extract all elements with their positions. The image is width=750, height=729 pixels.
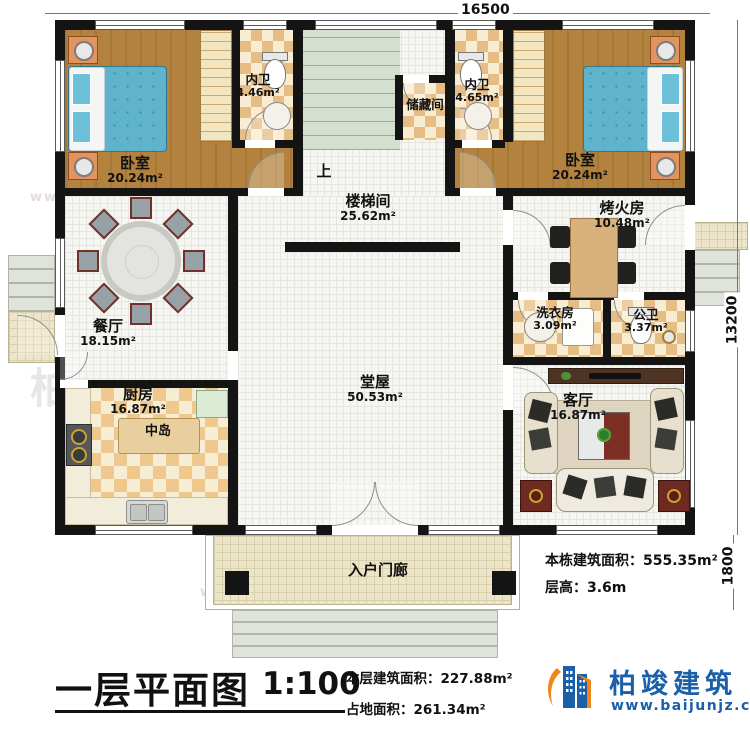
- dim-line-right: [737, 20, 738, 535]
- nightstand: [650, 36, 680, 64]
- plant-icon: [561, 372, 571, 380]
- sink-icon: [263, 102, 291, 130]
- side-table-icon: [520, 480, 552, 512]
- dim-line-top: [45, 13, 710, 14]
- chair: [550, 226, 570, 248]
- room-label-bathroom-right: 内卫4.65m²: [437, 78, 517, 105]
- door-opening: [60, 380, 88, 388]
- room-label-living: 客厅16.87m²: [528, 392, 628, 423]
- room-label-dining: 餐厅18.15m²: [58, 318, 158, 349]
- room-label-bedroom-right: 卧室20.24m²: [530, 152, 630, 183]
- floor-area: 本层建筑面积：227.88m²: [346, 664, 546, 695]
- stairs-flight: [303, 30, 400, 150]
- window: [562, 20, 654, 30]
- room-label-bathroom-left: 内卫4.46m²: [218, 73, 298, 100]
- chair: [183, 250, 205, 272]
- main-door-opening: [332, 525, 418, 535]
- floor-plan-canvas: 柏竣建筑 柏竣建筑 柏竣建筑 柏竣建筑 www.baijunjz.com www…: [0, 0, 750, 729]
- door-opening: [460, 188, 496, 196]
- door-opening: [503, 365, 513, 410]
- info-right: 本栋建筑面积：555.35m² 层高：3.6m: [545, 548, 725, 601]
- chair: [130, 197, 152, 219]
- info-bottom: 本层建筑面积：227.88m² 占地面积：261.34m²: [346, 664, 546, 726]
- wall: [503, 196, 513, 210]
- dim-right-height: 13200: [724, 293, 740, 348]
- sink-icon: [464, 102, 492, 130]
- wall: [503, 245, 513, 365]
- door-opening: [245, 140, 275, 148]
- side-table-icon: [658, 480, 690, 512]
- left-exterior-steps: [8, 255, 55, 311]
- logo-company-name: 柏竣建筑: [609, 662, 737, 701]
- bed-icon: [68, 66, 167, 152]
- window: [95, 20, 185, 30]
- chair: [616, 262, 636, 284]
- window: [245, 525, 317, 535]
- door-opening: [248, 188, 284, 196]
- dim-top-width: 16500: [458, 2, 513, 18]
- plan-title: 一层平面图: [55, 660, 250, 714]
- floor-height: 层高：3.6m: [545, 575, 725, 602]
- title-underline: [55, 710, 345, 713]
- room-label-publicbath: 公卫3.37m²: [608, 308, 684, 335]
- stair-up-label: 上: [310, 163, 338, 180]
- room-label-stairwell: 楼梯间25.62m²: [318, 193, 418, 224]
- window: [55, 238, 65, 308]
- nightstand: [68, 36, 98, 64]
- window: [315, 20, 437, 30]
- room-label-bedroom-left: 卧室20.24m²: [85, 155, 185, 186]
- room-label-porch: 入户门廊: [308, 562, 448, 579]
- logo: 柏竣建筑 www.baijunjz.com: [543, 656, 743, 722]
- door-opening: [518, 292, 548, 300]
- building-total-area: 本栋建筑面积：555.35m²: [545, 548, 725, 575]
- wall: [503, 410, 513, 535]
- window: [95, 525, 193, 535]
- dining-set: [85, 205, 197, 317]
- door-opening: [685, 205, 695, 250]
- stair-hall-divider-wall: [285, 242, 460, 252]
- tv-icon: [589, 373, 641, 379]
- tv-cabinet-icon: [548, 368, 684, 384]
- door-opening: [403, 75, 429, 83]
- island-label: 中岛: [128, 425, 188, 440]
- window: [452, 20, 496, 30]
- logo-building-icon: [543, 656, 605, 718]
- porch-column: [492, 571, 516, 595]
- logo-website: www.baijunjz.com: [611, 698, 750, 714]
- porch-column: [225, 571, 249, 595]
- chair: [550, 262, 570, 284]
- sofa-right-icon: [650, 388, 684, 474]
- room-label-hall: 堂屋50.53m²: [320, 374, 430, 405]
- window: [243, 20, 287, 30]
- window: [55, 60, 65, 152]
- bedroom-right-wardrobe: [513, 30, 545, 142]
- window: [685, 60, 695, 152]
- room-label-laundry: 洗衣房3.09m²: [512, 306, 598, 333]
- nightstand: [650, 152, 680, 180]
- wall: [503, 357, 695, 365]
- room-label-fireroom: 烤火房10.48m²: [572, 200, 672, 231]
- door-opening: [503, 210, 513, 245]
- room-label-kitchen: 厨房16.87m²: [88, 386, 188, 417]
- window: [556, 525, 658, 535]
- window: [428, 525, 500, 535]
- bed-icon: [583, 66, 682, 152]
- door-opening: [462, 140, 492, 148]
- plant-icon: [597, 428, 611, 442]
- wall: [293, 20, 303, 196]
- porch-steps: [232, 610, 498, 658]
- wall: [228, 196, 238, 351]
- wall: [228, 388, 238, 535]
- footprint-area: 占地面积：261.34m²: [346, 695, 546, 726]
- window: [685, 310, 695, 352]
- chair: [77, 250, 99, 272]
- stove-icon: [66, 424, 92, 466]
- fridge-icon: [196, 390, 228, 418]
- kitchen-sink-icon: [126, 500, 168, 524]
- sofa-bottom-icon: [556, 468, 654, 512]
